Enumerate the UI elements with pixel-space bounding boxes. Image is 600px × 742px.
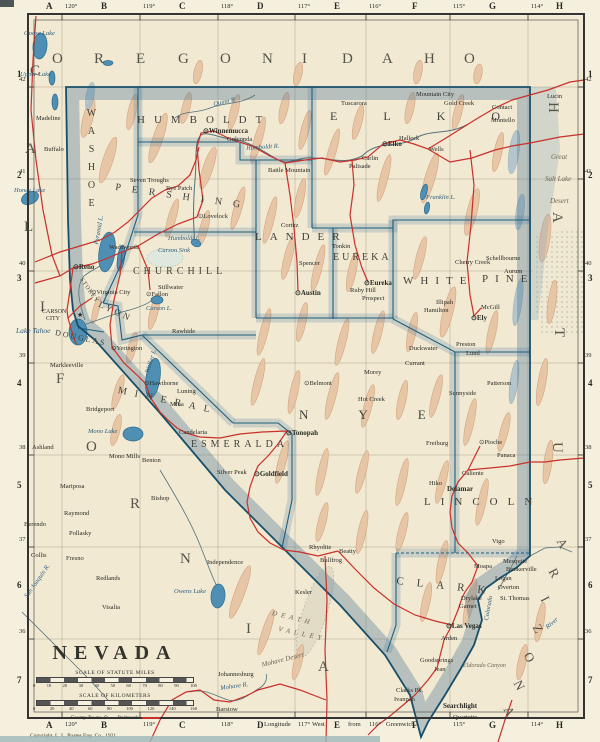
km-tick: 60 xyxy=(88,706,93,711)
title-block: NEVADA SCALE OF STATUTE MILES 0102030405… xyxy=(30,642,200,721)
column-letter: H xyxy=(556,2,563,11)
latitude-label: 39 xyxy=(585,353,592,360)
town-label: Contact xyxy=(492,105,512,112)
town-label: Wells xyxy=(429,147,444,154)
scan-edge-artifact xyxy=(0,736,380,742)
town-label: Johannesburg xyxy=(218,672,254,679)
latitude-label: 40 xyxy=(19,261,26,268)
water-label: Owens Lake xyxy=(174,589,206,596)
state-letter-idaho: A xyxy=(382,52,393,67)
town-label: Tonkin xyxy=(332,244,350,251)
town-label: Mesquite xyxy=(503,559,527,566)
water-label: Humboldt R. xyxy=(246,144,280,153)
town-label: ⊙Virginia City xyxy=(91,290,130,297)
town-label: Mina xyxy=(170,402,184,409)
town-label: Aurum xyxy=(504,269,522,276)
town-label: Barstow xyxy=(216,707,238,714)
town-label: Ivanpah xyxy=(394,697,415,704)
county-label: WASHOE xyxy=(86,108,96,216)
column-letter: D xyxy=(257,721,264,730)
map-legend: County Towns ⊙ Railroads xyxy=(30,715,200,721)
state-letter-california: A xyxy=(25,142,36,157)
legend-railroads: Railroads xyxy=(117,715,160,721)
column-letter: G xyxy=(489,2,496,11)
water-label: Honey Lake xyxy=(14,188,45,195)
state-letter-arizona: A xyxy=(502,704,518,718)
map-labels-layer: AABBCCDDEEFFGGHH120°120°119°119°118°118°… xyxy=(0,0,600,742)
scan-corner-artifact xyxy=(0,0,14,7)
longitude-label: 114° xyxy=(531,722,543,729)
town-label: Ruby Hill xyxy=(350,288,376,295)
state-letter-arizona: N xyxy=(512,678,528,692)
town-label: Preston xyxy=(456,342,476,349)
latitude-label: 38 xyxy=(585,445,592,452)
town-label: Battle Mountain xyxy=(268,168,310,175)
state-letter-idaho: D xyxy=(342,52,353,67)
miles-tick: 100 xyxy=(190,683,197,688)
state-letter-utah: H xyxy=(545,102,560,113)
km-tick: 40 xyxy=(69,706,74,711)
county-town-icon: ⊙ xyxy=(103,715,108,721)
state-letter-california: R xyxy=(130,497,140,512)
row-number: 4 xyxy=(17,379,22,388)
town-label: ⊙Yerington xyxy=(111,346,142,353)
state-letter-california: A xyxy=(318,660,329,675)
town-label: Redlands xyxy=(96,576,120,583)
water-label: Humboldt L. xyxy=(168,236,201,243)
county-label: CHURCHILL xyxy=(133,267,226,277)
county-label: CLARK xyxy=(396,576,499,598)
town-label: Raymond xyxy=(64,511,89,518)
legend-county-towns: County Towns ⊙ xyxy=(70,715,107,721)
town-label: Arden xyxy=(441,636,457,643)
railroad-sample-icon xyxy=(142,717,160,719)
town-label: Tuscarora xyxy=(341,101,367,108)
town-label: ⊙Belmont xyxy=(304,381,332,388)
town-label: Independence xyxy=(207,560,243,567)
town-label: Golconda xyxy=(227,137,252,144)
town-label: Gold Creek xyxy=(444,101,474,108)
town-label: CARSON xyxy=(42,309,66,315)
water-label: Lake Tahoe xyxy=(16,327,51,335)
longitude-label: 120° xyxy=(65,722,77,729)
water-label: Franklin L. xyxy=(426,195,456,202)
town-label: Bullfrog xyxy=(320,558,342,565)
town-label: Madeline xyxy=(36,116,61,123)
town-label: ⊙Elko xyxy=(382,141,402,148)
latitude-label: 36 xyxy=(585,629,592,636)
state-letter-oregon: E xyxy=(136,52,145,67)
longitude-label: 119° xyxy=(143,4,155,11)
region-label: Salt Lake xyxy=(545,176,571,183)
state-letter-arizona: I xyxy=(539,594,553,604)
town-label: Hot Creek xyxy=(358,397,385,404)
km-scale-caption: SCALE OF KILOMETERS xyxy=(30,693,200,699)
town-label: ⊙Pioche xyxy=(479,440,502,447)
latitude-label: 42 xyxy=(585,77,592,84)
row-number: 5 xyxy=(588,481,593,490)
miles-scale-caption: SCALE OF STATUTE MILES xyxy=(30,670,200,676)
longitude-label: 115° xyxy=(453,4,465,11)
town-label: Illipah xyxy=(436,300,453,307)
longitude-label: 117° xyxy=(298,722,310,729)
region-label: Eldorado Canyon xyxy=(463,663,506,669)
column-letter: H xyxy=(556,721,563,730)
longitude-word: West xyxy=(312,722,325,729)
state-letter-arizona: O xyxy=(522,650,538,664)
state-letter-california: F xyxy=(56,372,64,387)
town-label: Buffalo xyxy=(44,147,64,154)
town-label: Seven Troughs xyxy=(130,178,169,185)
km-tick: 120 xyxy=(148,706,155,711)
state-letter-arizona: R xyxy=(547,566,563,580)
water-label: River xyxy=(545,617,560,631)
town-label: Beatty xyxy=(339,549,356,556)
latitude-label: 37 xyxy=(19,537,26,544)
water-label: Upper Lake xyxy=(20,72,51,79)
county-label: LYON xyxy=(97,300,134,323)
state-letter-oregon: O xyxy=(52,52,63,67)
county-label: MINERAL xyxy=(117,386,218,417)
latitude-label: 39 xyxy=(19,353,26,360)
column-letter: G xyxy=(489,721,496,730)
town-label: Overton xyxy=(498,585,519,592)
county-label: EUREKA xyxy=(333,253,392,263)
state-letter-oregon: G xyxy=(178,52,189,67)
town-label: Montello xyxy=(491,118,515,125)
miles-tick: 80 xyxy=(158,683,163,688)
km-tick: 140 xyxy=(169,706,176,711)
town-label: Halleck xyxy=(399,136,419,143)
county-label: LANDER xyxy=(255,232,348,243)
longitude-word: Longitude xyxy=(264,722,291,729)
state-letter-oregon: O xyxy=(220,52,231,67)
region-label: Great xyxy=(551,154,567,161)
row-number: 4 xyxy=(588,379,593,388)
water-label: Carson Sink xyxy=(158,248,190,255)
longitude-word: from xyxy=(348,722,361,729)
km-tick: 100 xyxy=(126,706,133,711)
row-number: 7 xyxy=(588,676,593,685)
town-label: St. Thomas xyxy=(500,596,530,603)
town-label: Lucin xyxy=(547,94,562,101)
row-number: 6 xyxy=(17,581,22,590)
state-letter-utah: T xyxy=(551,328,566,337)
county-label: LINCOLN xyxy=(424,497,542,508)
row-number: 7 xyxy=(17,676,22,685)
km-tick: 0 xyxy=(33,706,35,711)
town-label: Mountain City xyxy=(416,92,454,99)
water-label: Pyramid L. xyxy=(94,215,105,245)
longitude-label: 117° xyxy=(298,4,310,11)
km-tick: 20 xyxy=(50,706,55,711)
town-label: Rye Patch xyxy=(166,186,192,193)
miles-tick: 30 xyxy=(79,683,84,688)
column-letter: B xyxy=(101,2,107,11)
column-letter: C xyxy=(179,2,186,11)
town-label: Mariposa xyxy=(60,484,85,491)
town-label: Freiburg xyxy=(426,441,448,448)
town-label: ⊙Fallon xyxy=(146,292,168,299)
water-label: Carson L. xyxy=(146,306,172,313)
column-letter: C xyxy=(179,721,186,730)
water-label: Mono Lake xyxy=(88,429,117,436)
longitude-label: 114° xyxy=(531,4,543,11)
town-label: Berendo xyxy=(24,522,46,529)
town-label: Logan xyxy=(495,576,512,583)
row-number: 6 xyxy=(588,581,593,590)
km-scale-ticks: 020406080100120140160 xyxy=(33,706,197,711)
longitude-label: 118° xyxy=(221,722,233,729)
state-letter-california: N xyxy=(180,552,191,567)
column-letter: A xyxy=(46,721,53,730)
state-letter-idaho: O xyxy=(464,52,475,67)
longitude-label: 118° xyxy=(221,4,233,11)
town-label: Bridgeport xyxy=(86,407,114,414)
town-label: ★ xyxy=(77,312,83,319)
town-label: Searchlight xyxy=(443,703,477,710)
town-label: Bunkerville xyxy=(506,567,537,574)
town-label: Collis xyxy=(31,553,47,560)
town-label: Cherry Creek xyxy=(455,260,490,267)
town-label: Drylake xyxy=(461,596,482,603)
longitude-label: 115° xyxy=(453,722,465,729)
county-label: NYE xyxy=(299,408,476,421)
town-label: ⊙Tonopah xyxy=(286,430,318,437)
longitude-label: 116° xyxy=(369,4,381,11)
km-tick: 160 xyxy=(190,706,197,711)
row-number: 5 xyxy=(17,481,22,490)
state-letter-utah: U xyxy=(549,442,564,453)
km-tick: 80 xyxy=(107,706,112,711)
town-label: Markleeville xyxy=(50,363,83,370)
water-label: San Joaquin R. xyxy=(24,564,52,600)
town-label: ⊙Hawthorne xyxy=(144,381,178,388)
town-label: Patterson xyxy=(487,381,511,388)
column-letter: E xyxy=(334,721,340,730)
town-label: Mono Mills xyxy=(109,454,140,461)
town-label: McGill xyxy=(481,305,500,312)
region-label: Desert xyxy=(550,198,569,205)
latitude-label: 40 xyxy=(585,261,592,268)
miles-tick: 70 xyxy=(142,683,147,688)
water-label: Mohave R. xyxy=(220,682,249,692)
town-label: Carlin xyxy=(362,156,378,163)
town-label: Benton xyxy=(142,458,161,465)
town-label: Candelaria xyxy=(179,430,207,437)
region-label: Mohave Desert xyxy=(261,652,304,669)
map-title: NEVADA xyxy=(30,642,200,665)
town-label: Lund xyxy=(466,351,480,358)
water-label: Walker L. xyxy=(145,348,159,374)
town-label: ⊙Winnemucca xyxy=(203,128,248,135)
town-label: ⊙Las Vegas xyxy=(446,623,482,630)
county-label: PINE xyxy=(482,274,534,285)
miles-tick: 90 xyxy=(174,683,179,688)
miles-tick: 20 xyxy=(63,683,68,688)
town-label: ⊙Austin xyxy=(295,290,321,297)
state-letter-arizona: Z xyxy=(531,622,546,635)
town-label: CITY xyxy=(46,316,60,322)
miles-tick: 10 xyxy=(47,683,52,688)
map-page: AABBCCDDEEFFGGHH120°120°119°119°118°118°… xyxy=(0,0,600,742)
town-label: Hamilton xyxy=(424,308,449,315)
town-label: Palisade xyxy=(349,164,371,171)
county-label: ESMERALDA xyxy=(191,440,288,450)
miles-scale-ticks: 0102030405060708090100 xyxy=(33,683,197,688)
column-letter: F xyxy=(412,2,418,11)
region-label: DEATH xyxy=(271,610,314,627)
column-letter: A xyxy=(46,2,53,11)
town-label: Luning xyxy=(177,389,196,396)
miles-tick: 60 xyxy=(126,683,131,688)
region-label: VALLEY xyxy=(278,626,326,643)
state-letter-oregon: R xyxy=(94,52,104,67)
town-label: Prospect xyxy=(362,296,384,303)
longitude-word: Greenwich xyxy=(386,722,415,729)
town-label: Pollasky xyxy=(69,531,91,538)
latitude-label: 38 xyxy=(19,445,26,452)
state-letter-utah: A xyxy=(549,212,564,223)
town-label: Schellbourne xyxy=(486,256,520,263)
town-label: Hiko xyxy=(429,481,442,488)
miles-tick: 50 xyxy=(110,683,115,688)
county-label: WHITE xyxy=(403,276,473,287)
town-label: Caliente xyxy=(462,471,484,478)
row-number: 3 xyxy=(588,274,593,283)
town-label: Fresno xyxy=(66,556,84,563)
town-label: ⊙Reno xyxy=(73,264,94,271)
latitude-label: 41 xyxy=(585,169,592,176)
latitude-label: 37 xyxy=(585,537,592,544)
state-letter-california: O xyxy=(86,440,97,455)
column-letter: E xyxy=(334,2,340,11)
latitude-label: 36 xyxy=(19,629,26,636)
town-label: Visalia xyxy=(102,605,120,612)
state-letter-idaho: H xyxy=(424,52,435,67)
town-label: Clarks Pk. xyxy=(396,688,423,695)
state-letter-california: L xyxy=(24,220,33,235)
miles-tick: 40 xyxy=(95,683,100,688)
column-letter: B xyxy=(101,721,107,730)
water-label: Quinn R. xyxy=(213,97,237,108)
town-label: Moapa xyxy=(474,564,492,571)
town-label: Wadsworth xyxy=(109,245,138,252)
state-letter-california: I xyxy=(246,622,251,637)
longitude-label: 120° xyxy=(65,4,77,11)
water-label: Goose Lake xyxy=(24,31,55,38)
town-label: Bishop xyxy=(151,496,169,503)
town-label: Vigo xyxy=(492,539,505,546)
town-label: Garnet xyxy=(459,604,477,611)
county-label: DOUGLAS xyxy=(54,329,107,348)
state-letter-arizona: A xyxy=(555,536,571,550)
latitude-label: 41 xyxy=(19,169,26,176)
town-label: ⊙Lovelock xyxy=(198,214,228,221)
town-label: Goodsprings xyxy=(420,658,453,665)
town-label: ⊙Ely xyxy=(471,315,487,322)
town-label: Cortez xyxy=(281,223,298,230)
town-label: Rhyolite xyxy=(309,545,331,552)
county-label: HUMBOLDT xyxy=(137,115,271,126)
town-label: Panaca xyxy=(497,453,515,460)
town-label: Rawhide xyxy=(172,329,195,336)
town-label: Morey xyxy=(364,370,381,377)
town-label: ⊙Goldfield xyxy=(254,471,288,478)
town-label: Spencer xyxy=(299,261,320,268)
water-label: Colorado xyxy=(484,595,495,621)
town-label: Quartette xyxy=(453,715,477,722)
town-label: Delamar xyxy=(447,486,473,493)
town-label: Sunnyside xyxy=(449,391,476,398)
state-letter-oregon: N xyxy=(262,52,273,67)
town-label: ⊙Eureka xyxy=(364,280,392,287)
town-label: Ashland xyxy=(32,445,54,452)
row-number: 3 xyxy=(17,274,22,283)
longitude-label: 116° xyxy=(369,722,381,729)
town-label: Kesler xyxy=(295,590,312,597)
town-label: Silver Peak xyxy=(217,470,247,477)
miles-tick: 0 xyxy=(33,683,35,688)
town-label: Duckwater xyxy=(409,346,438,353)
column-letter: D xyxy=(257,2,264,11)
state-letter-idaho: I xyxy=(302,52,307,67)
town-label: Jean xyxy=(434,667,446,674)
town-label: Currant xyxy=(405,361,425,368)
longitude-label: 119° xyxy=(143,722,155,729)
